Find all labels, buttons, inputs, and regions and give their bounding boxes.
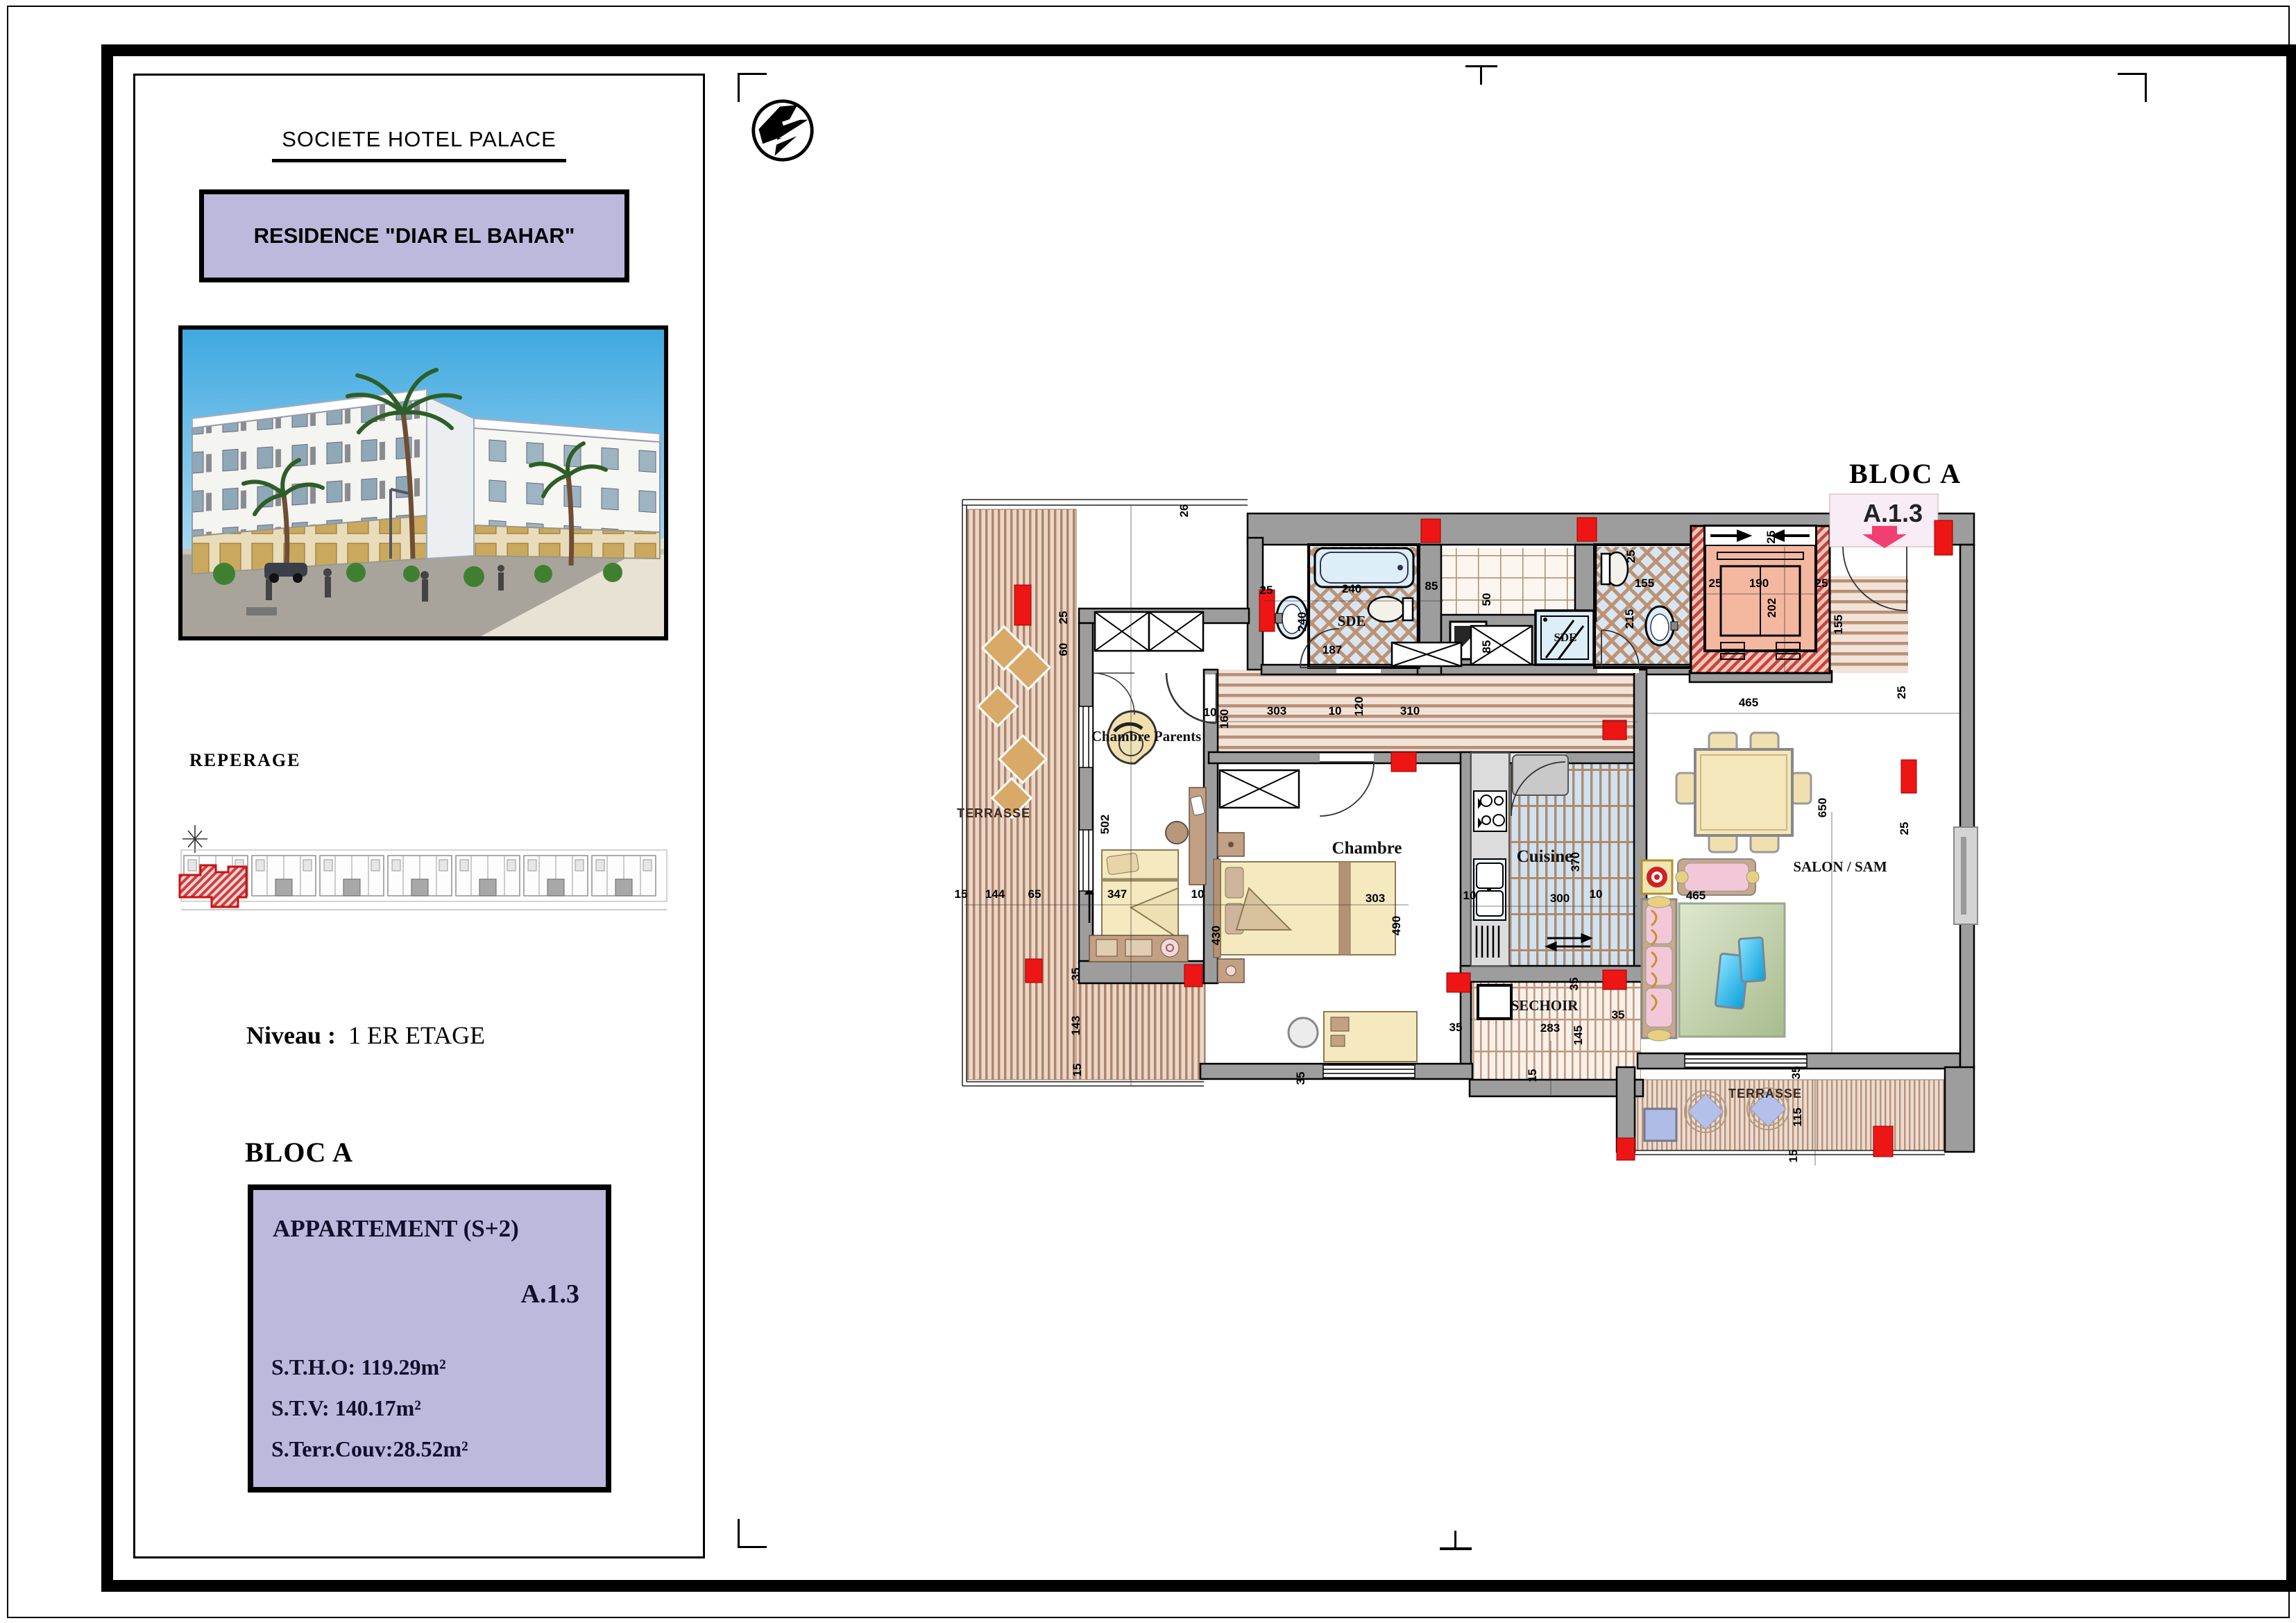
surface-tv: S.T.V: 140.17m² [271, 1388, 606, 1429]
room-label: TERRASSE [1728, 1087, 1802, 1101]
wardrobe-hall-1 [1392, 643, 1461, 666]
fridge [1513, 755, 1568, 795]
elevator [1691, 526, 1830, 673]
dimension-value: 35 [1449, 1021, 1463, 1034]
room-label: Cuisine [1517, 847, 1573, 866]
dimension-value: 310 [1400, 704, 1420, 717]
dimension-value: 187 [1323, 643, 1342, 656]
dimension-value: 10 [1204, 706, 1217, 719]
dimension-value: 25 [1709, 577, 1722, 590]
dimension-value: 143 [1069, 1016, 1082, 1035]
dimension-value: 65 [1028, 887, 1041, 901]
reg-mark [2118, 73, 2147, 75]
dimension-value: 85 [1425, 579, 1438, 593]
dining-set [1676, 733, 1811, 852]
room-label: TERRASSE [957, 806, 1030, 820]
dimension-value: 430 [1209, 926, 1223, 945]
dimension-value: 10 [1191, 887, 1205, 901]
dimension-value: 35 [1294, 1072, 1307, 1085]
dimension-value: 347 [1107, 887, 1127, 901]
reg-mark [738, 73, 740, 102]
dimension-value: 283 [1540, 1021, 1560, 1035]
room-label: Chambre Parents [1091, 728, 1201, 745]
dimension-value: 50 [1480, 593, 1493, 606]
chambre-desk [1289, 1012, 1417, 1062]
dimension-value: 465 [1739, 696, 1758, 709]
stove [1474, 791, 1506, 831]
dimension-value: 35 [1789, 1067, 1803, 1080]
room-label: SDE [1554, 631, 1576, 644]
dimension-value: 25 [1624, 550, 1638, 563]
room-label: SECHOIR [1511, 997, 1579, 1014]
apartment-type: APPARTEMENT (S+2) [273, 1215, 606, 1243]
dimension-value: 15 [1071, 1064, 1084, 1077]
room-label: Chambre [1332, 839, 1402, 858]
dimension-value: 490 [1390, 916, 1403, 935]
residence-title: RESIDENCE "DIAR EL BAHAR" [199, 189, 629, 282]
bathtub [1315, 548, 1413, 587]
floor-plan: A.1.3 BLOC A [923, 444, 2012, 1221]
room-label: SDE [1338, 613, 1366, 629]
reperage-label: REPERAGE [189, 750, 300, 771]
dimension-value: 240 [1342, 582, 1361, 595]
dimension-value: 145 [1572, 1026, 1585, 1045]
surface-terr: S.Terr.Couv:28.52m² [271, 1429, 606, 1470]
apartment-unit: A.1.3 [253, 1279, 579, 1309]
dimension-value: 15 [955, 887, 968, 901]
dimension-value: 60 [1057, 643, 1070, 656]
dimension-value: 10 [1463, 889, 1477, 902]
dimension-value: 15 [1787, 1150, 1800, 1163]
dimension-value: 25 [1260, 584, 1273, 597]
dimension-value: 35 [1612, 1008, 1625, 1021]
dimension-value: 160 [1218, 709, 1231, 729]
dimension-value: 115 [1791, 1107, 1804, 1126]
dimension-value: 10 [1590, 887, 1603, 901]
sde1-toilet [1368, 597, 1413, 622]
dimension-value: 303 [1366, 892, 1385, 905]
dimension-value: 202 [1765, 598, 1778, 618]
dimension-value: 465 [1686, 889, 1706, 902]
dimension-value: 25 [1898, 822, 1911, 835]
wicker-chair [1685, 1091, 1726, 1132]
building-render-art [182, 330, 664, 636]
wardrobe-parents [1095, 612, 1203, 651]
kitchen-sink [1474, 859, 1506, 920]
dimension-value: 35 [1069, 968, 1082, 981]
unit-entrance-tag: A.1.3 [1830, 494, 1938, 548]
level-line: Niveau :1 ER ETAGE [246, 1021, 485, 1050]
level-value: 1 ER ETAGE [348, 1021, 485, 1049]
title-panel: SOCIETE HOTEL PALACE RESIDENCE "DIAR EL … [133, 74, 705, 1558]
parents-bed [1089, 850, 1188, 962]
plan-bloc-title: BLOC A [1849, 458, 1962, 489]
reg-mark [738, 73, 767, 75]
dimension-value: 300 [1550, 892, 1570, 905]
reperage-keyplan [176, 813, 672, 934]
reg-mark [1480, 65, 1482, 85]
wardrobe-chambre [1220, 770, 1299, 808]
chambre-bed [1214, 859, 1395, 958]
dimension-value: 303 [1267, 704, 1286, 717]
surface-tho: S.T.H.O: 119.29m² [271, 1347, 606, 1388]
hall-floor [1441, 548, 1575, 615]
salon-sofa [1642, 897, 1676, 1041]
washing-machine [1478, 985, 1511, 1019]
drawing-sheet: SOCIETE HOTEL PALACE RESIDENCE "DIAR EL … [0, 0, 2296, 1623]
level-label: Niveau : [246, 1021, 336, 1049]
building-render-image [178, 325, 668, 640]
unit-tag-text: A.1.3 [1863, 499, 1923, 527]
room-label: SALON / SAM [1793, 858, 1887, 875]
dimension-value: 215 [1623, 609, 1636, 629]
dimension-value: 25 [1815, 577, 1828, 590]
dimension-value: 85 [1480, 640, 1493, 654]
dimension-value: 25 [1895, 686, 1908, 699]
dimension-value: 502 [1098, 815, 1112, 834]
dimension-value: 155 [1635, 577, 1654, 590]
keyplan-compass-icon [182, 825, 207, 853]
dimension-value: 240 [1295, 612, 1309, 631]
apartment-info-box: APPARTEMENT (S+2) A.1.3 S.T.H.O: 119.29m… [248, 1184, 611, 1493]
dimension-value: 155 [1832, 615, 1845, 634]
dimension-value: 15 [1526, 1069, 1539, 1082]
dimension-value: 120 [1352, 697, 1366, 716]
dimension-value: 25 [1057, 611, 1070, 624]
reg-mark [738, 1519, 740, 1548]
reg-mark [738, 1546, 767, 1548]
dimension-value: 35 [1567, 978, 1581, 991]
bloc-label: BLOC A [245, 1136, 353, 1169]
dimension-value: 144 [985, 887, 1005, 901]
keyplan-art [176, 813, 672, 931]
reg-mark [2145, 73, 2147, 102]
salon-side-table [1642, 860, 1672, 894]
dimension-value: 190 [1749, 577, 1769, 590]
dimension-value: 10 [1329, 704, 1342, 717]
dimension-value: 25 [1764, 531, 1778, 544]
company-name: SOCIETE HOTEL PALACE [135, 127, 703, 162]
dimension-value: 650 [1816, 798, 1829, 817]
north-arrow-icon [749, 97, 816, 167]
salon-rug-tv [1679, 903, 1785, 1037]
reg-mark [1454, 1531, 1456, 1549]
dimension-value: 26 [1177, 504, 1191, 518]
